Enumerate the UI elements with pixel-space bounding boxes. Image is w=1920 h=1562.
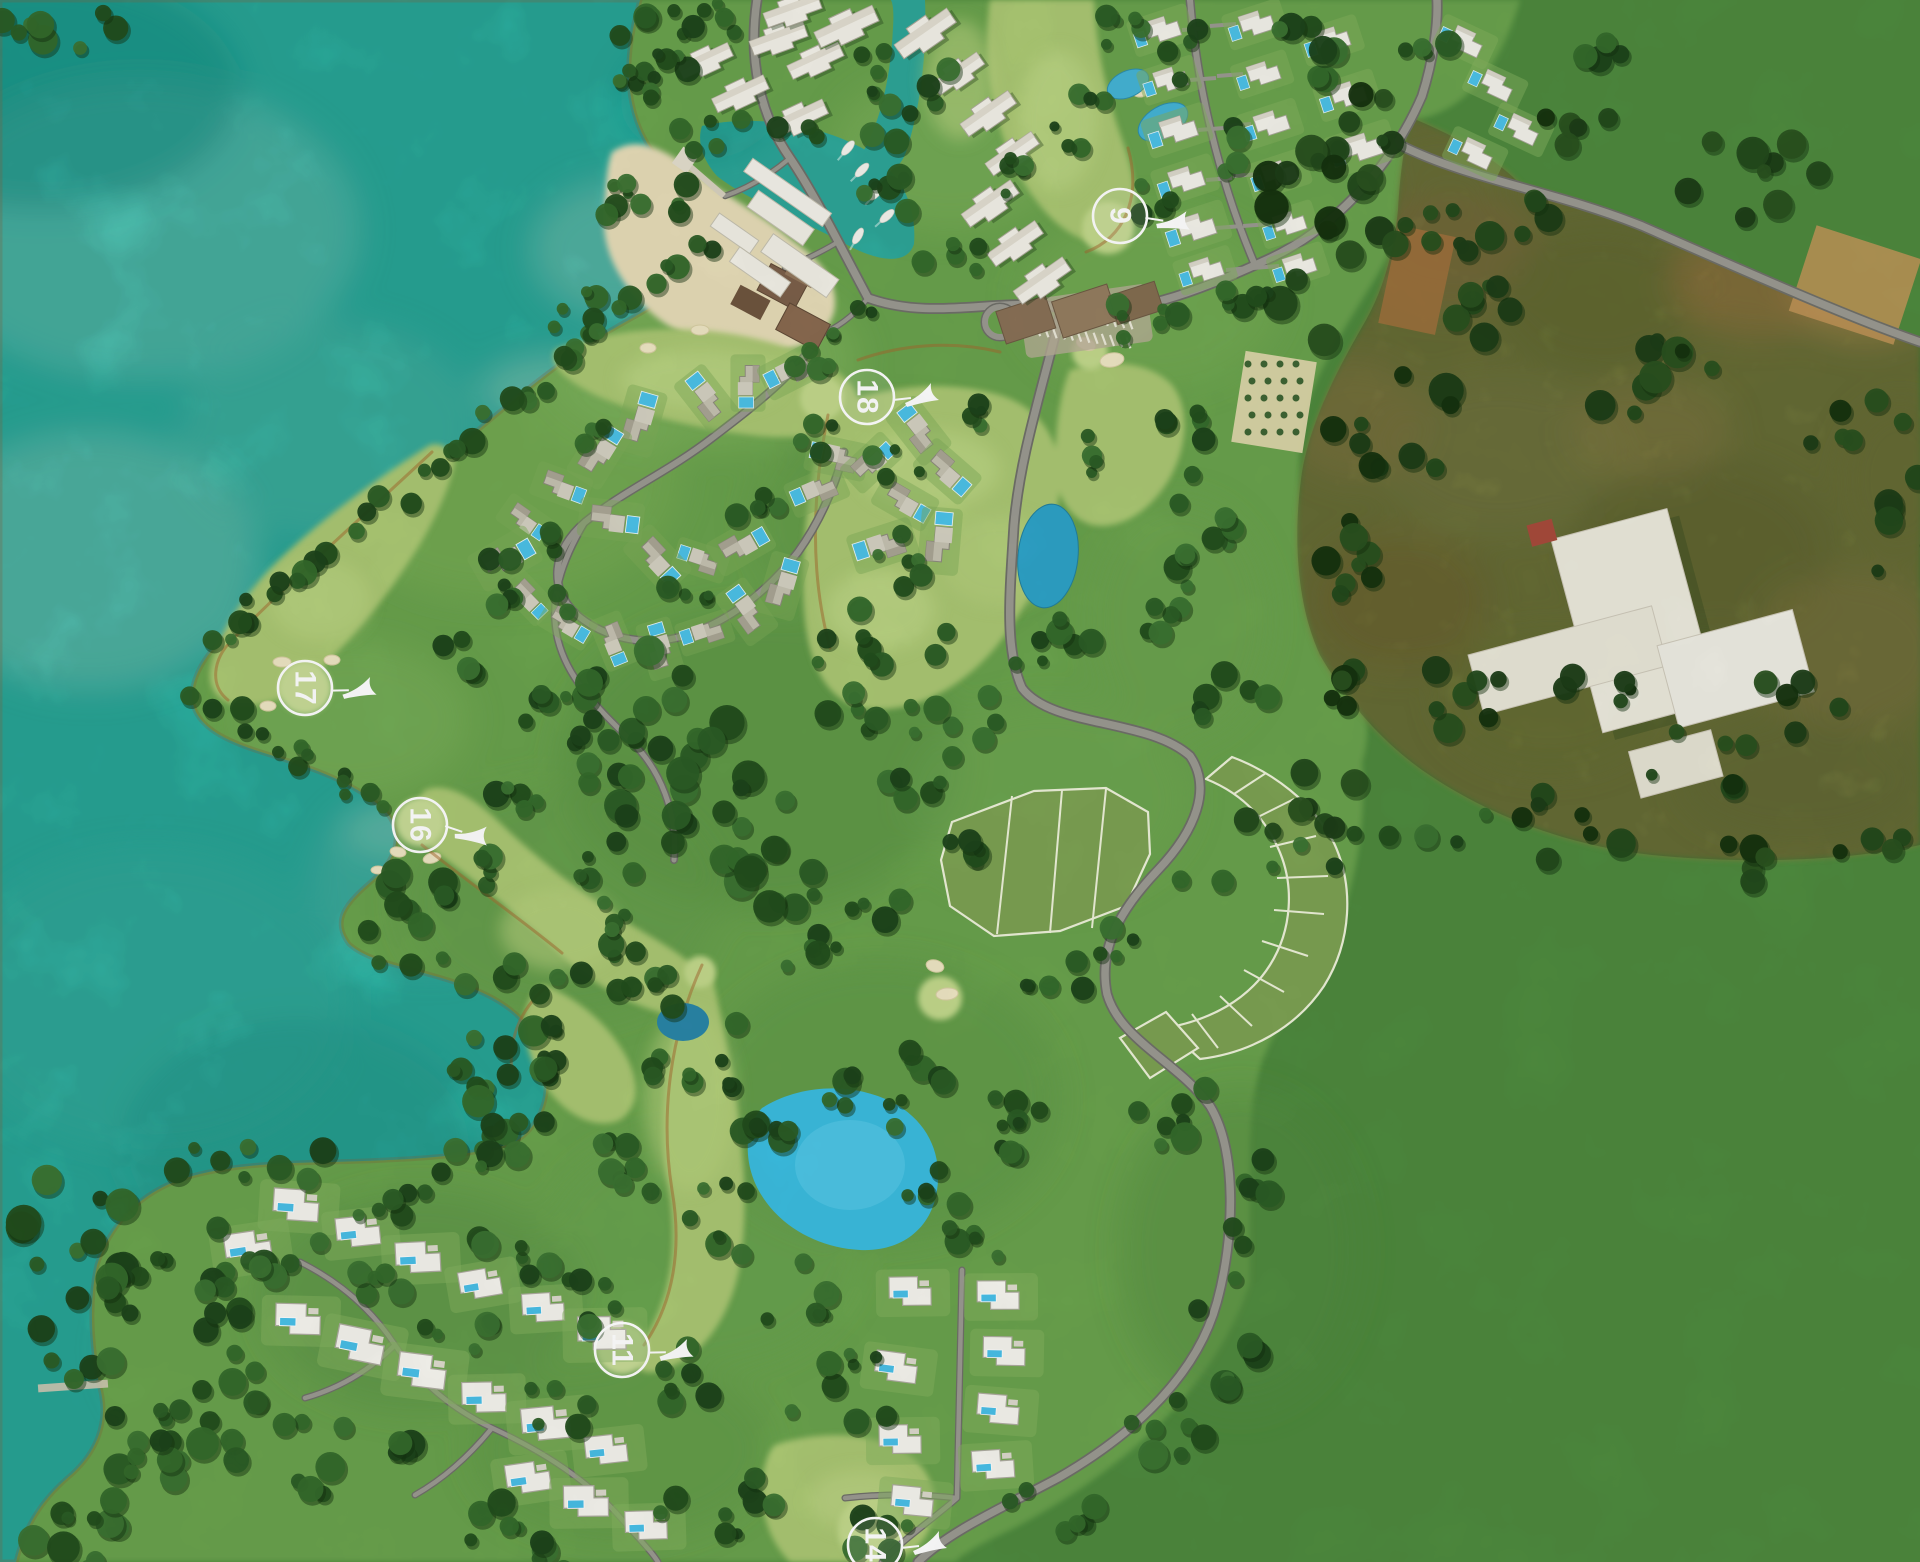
photo-grain-overlay (0, 0, 1920, 1562)
map-canvas: 91817161114 (0, 0, 1920, 1562)
resort-master-plan-map: 91817161114 (0, 0, 1920, 1562)
